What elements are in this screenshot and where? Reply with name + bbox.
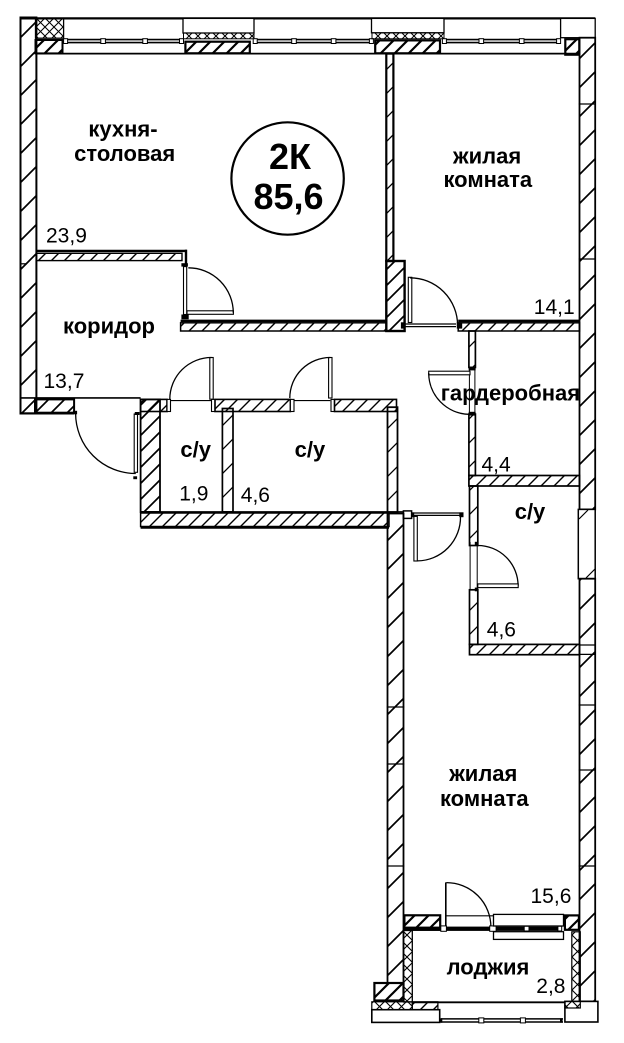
svg-text:2К: 2К	[269, 136, 312, 177]
svg-text:кухня-: кухня-	[88, 117, 157, 142]
svg-text:гардеробная: гардеробная	[441, 380, 580, 405]
svg-text:2,8: 2,8	[536, 975, 565, 998]
svg-text:коридор: коридор	[63, 314, 155, 339]
svg-text:комната: комната	[443, 167, 532, 192]
svg-text:13,7: 13,7	[44, 370, 85, 393]
svg-text:столовая: столовая	[74, 141, 175, 166]
svg-text:комната: комната	[440, 786, 529, 811]
svg-text:4,6: 4,6	[487, 619, 516, 642]
svg-text:1,9: 1,9	[179, 483, 208, 506]
svg-text:4,4: 4,4	[482, 453, 512, 476]
svg-text:4,6: 4,6	[241, 484, 270, 507]
svg-text:жилая: жилая	[448, 761, 517, 786]
svg-text:лоджия: лоджия	[447, 955, 530, 980]
svg-text:14,1: 14,1	[534, 296, 575, 319]
svg-text:с/у: с/у	[295, 437, 326, 462]
svg-text:15,6: 15,6	[531, 885, 572, 908]
svg-text:23,9: 23,9	[46, 224, 87, 247]
svg-text:с/у: с/у	[515, 499, 546, 524]
svg-text:жилая: жилая	[452, 144, 521, 169]
svg-text:85,6: 85,6	[253, 176, 323, 217]
svg-text:с/у: с/у	[180, 437, 211, 462]
